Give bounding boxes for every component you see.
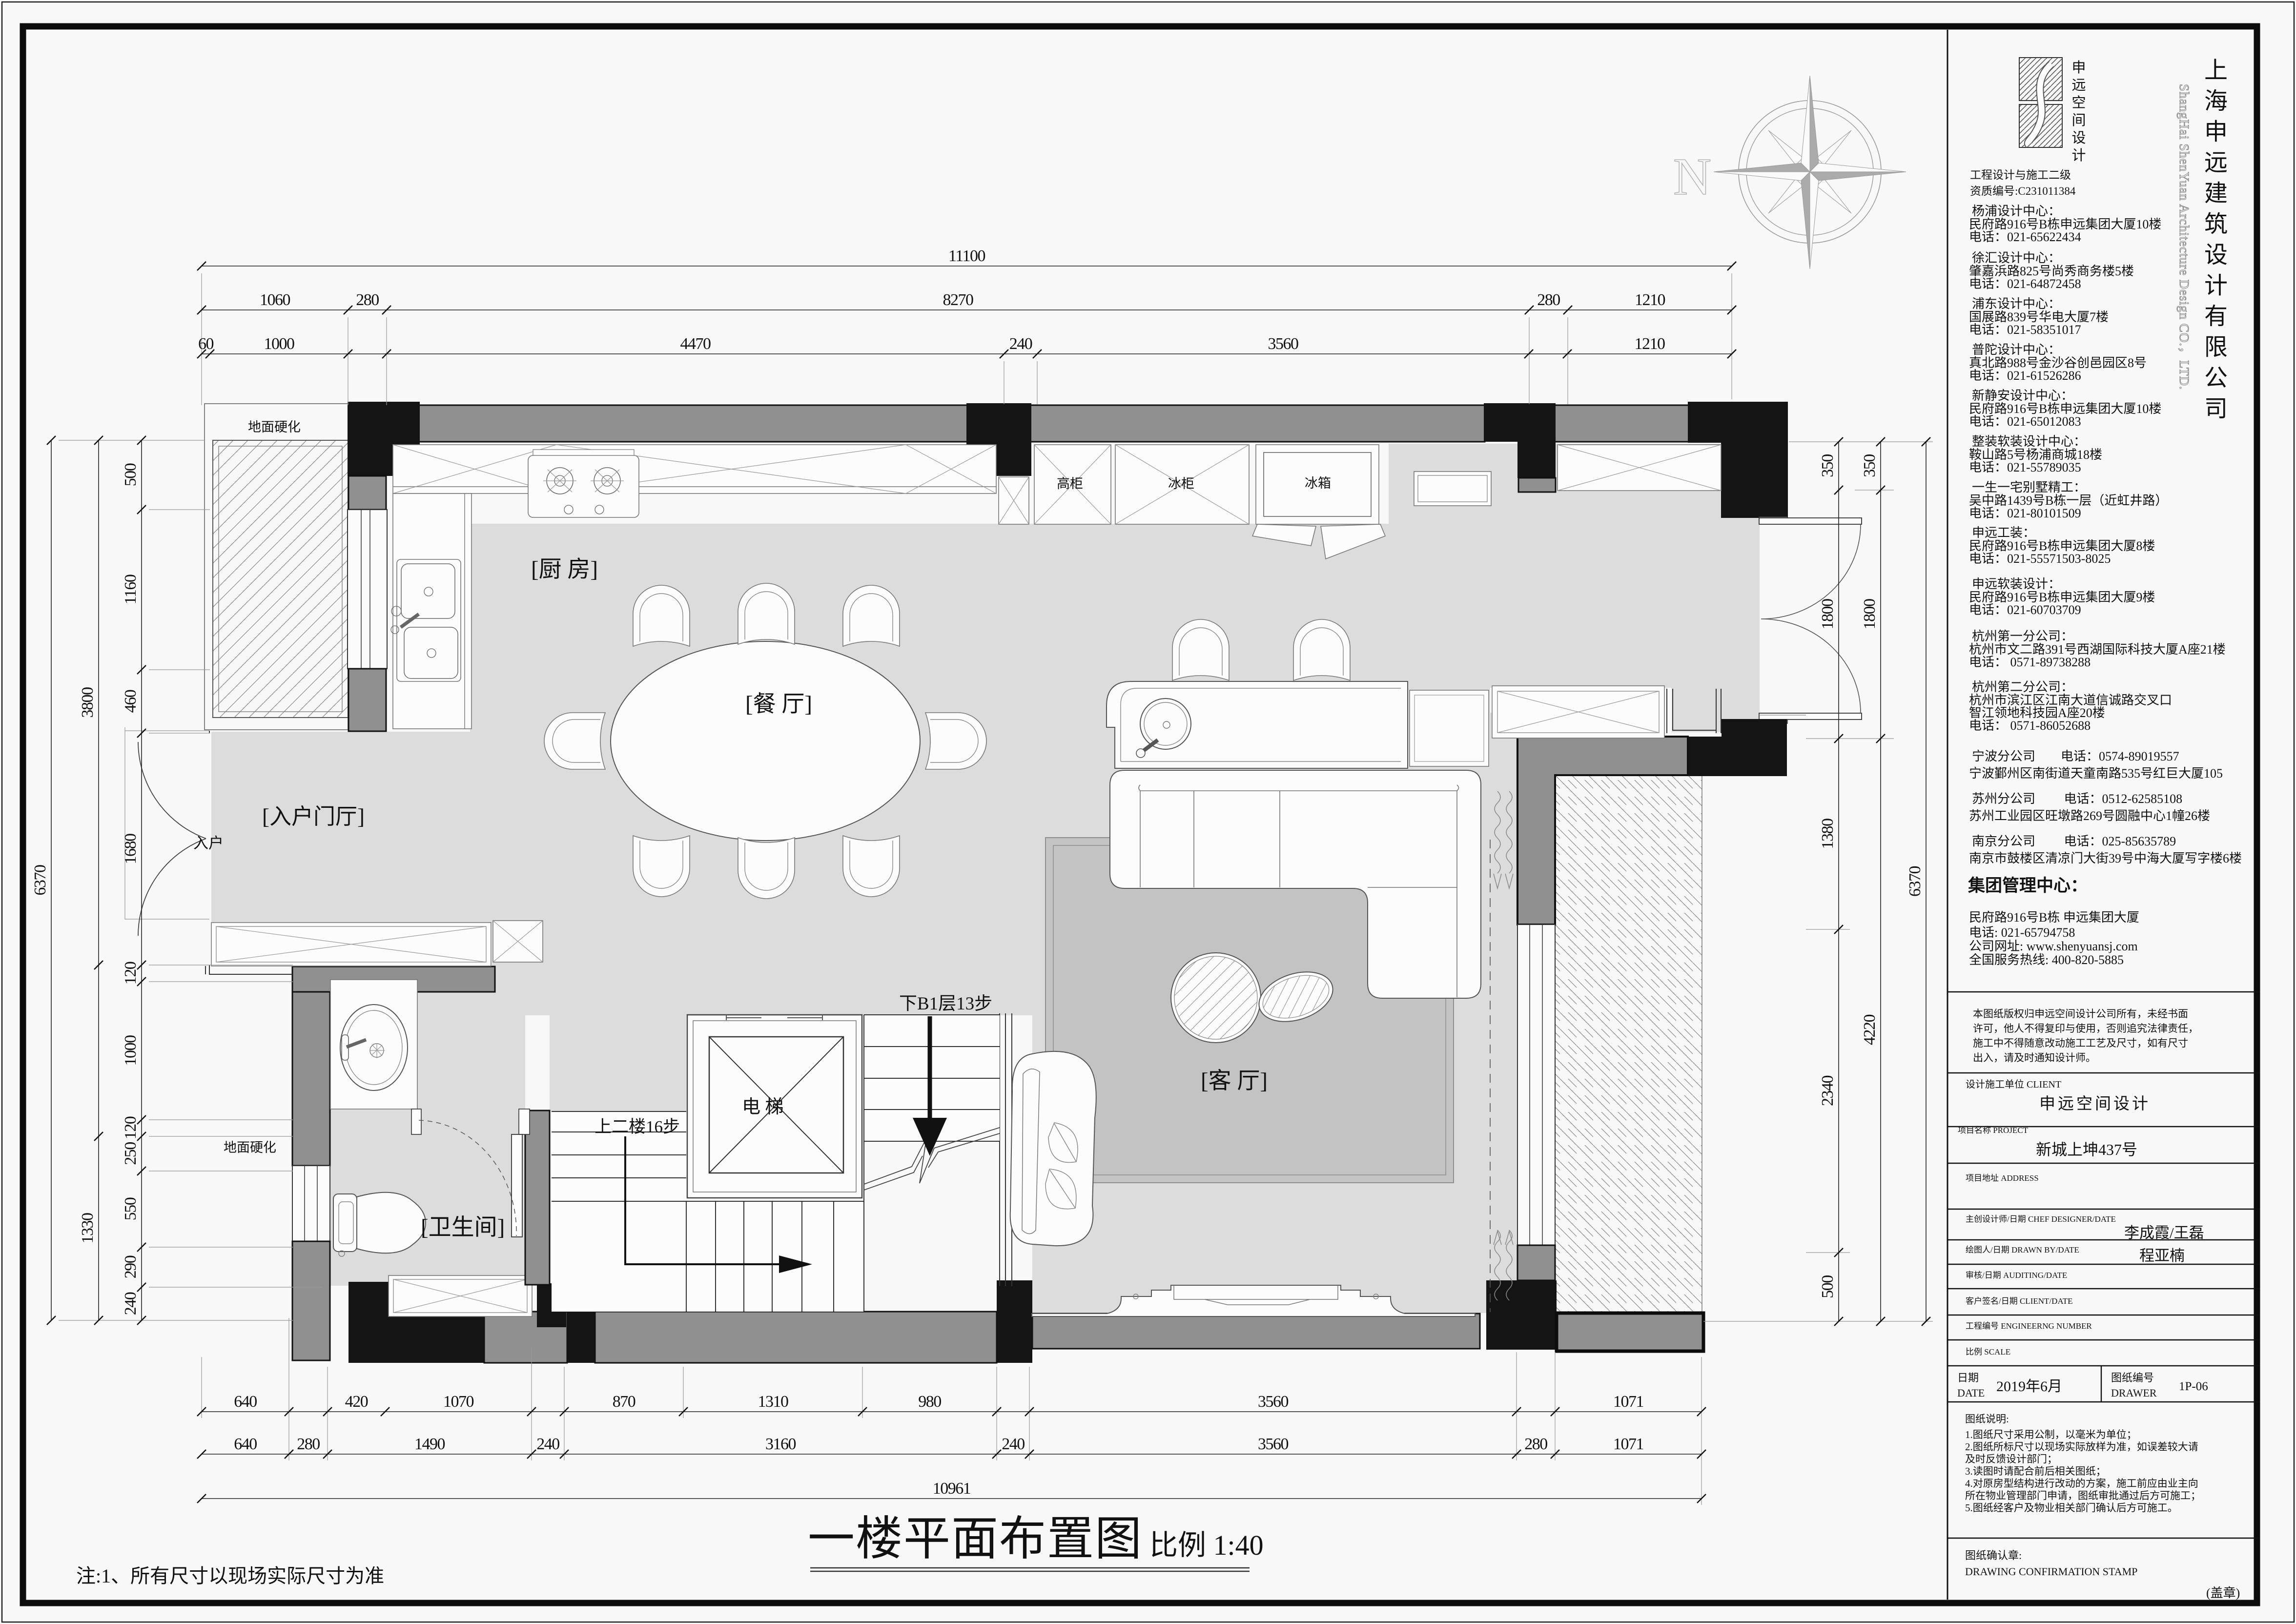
svg-text:3800: 3800 [79,687,97,718]
svg-text:电话：021-80101509: 电话：021-80101509 [1969,506,2081,520]
svg-text:南京分公司 电话：025-85635789: 南京分公司 电话：025-85635789 [1972,834,2176,848]
svg-text:280: 280 [1524,1435,1547,1453]
svg-text:许可，他人不得复印与使用，否则追究法律责任，: 许可，他人不得复印与使用，否则追究法律责任， [1973,1023,2198,1034]
svg-text:60: 60 [198,335,214,353]
svg-text:1310: 1310 [758,1393,789,1411]
svg-text:500: 500 [122,463,140,486]
svg-text:420: 420 [345,1393,368,1411]
svg-text:入户: 入户 [193,835,224,852]
svg-text:980: 980 [918,1393,941,1411]
svg-text:[卫生间]: [卫生间] [421,1215,505,1240]
svg-text:3560: 3560 [1258,1393,1289,1411]
svg-text:1680: 1680 [122,834,140,864]
svg-text:870: 870 [613,1393,635,1411]
svg-text:电话: 021-65794758: 电话: 021-65794758 [1969,925,2075,940]
svg-text:1.图纸尺寸采用公制，以毫米为单位；: 1.图纸尺寸采用公制，以毫米为单位； [1965,1429,2137,1440]
svg-text:6370: 6370 [1906,866,1924,897]
svg-text:日期: 日期 [1957,1372,1979,1384]
svg-text:项目名称 PROJECT: 项目名称 PROJECT [1958,1126,2029,1135]
svg-text:10961: 10961 [933,1480,971,1498]
svg-text:640: 640 [234,1435,257,1453]
svg-text:民府路916号B栋申远集团大厦10楼: 民府路916号B栋申远集团大厦10楼 [1969,402,2161,416]
svg-text:280: 280 [356,291,379,309]
svg-text:主创设计师/日期 CHEF DESIGNER/DATE: 主创设计师/日期 CHEF DESIGNER/DATE [1966,1214,2116,1224]
svg-text:2.图纸所标尺寸以现场实际放样为准，如误差较大请: 2.图纸所标尺寸以现场实际放样为准，如误差较大请 [1965,1441,2198,1453]
svg-text:苏州分公司 电话：0512-62585108: 苏州分公司 电话：0512-62585108 [1972,792,2182,806]
svg-text:电 梯: 电 梯 [742,1097,784,1117]
svg-text:1071: 1071 [1613,1393,1643,1411]
svg-text:电话：021-60703709: 电话：021-60703709 [1969,603,2081,617]
svg-text:高柜: 高柜 [1057,476,1083,491]
svg-text:地面硬化: 地面硬化 [224,1140,276,1155]
svg-text:公司网址: www.shenyuansj.com: 公司网址: www.shenyuansj.com [1969,939,2138,953]
svg-text:2019年6月: 2019年6月 [1996,1378,2062,1395]
svg-text:冰柜: 冰柜 [1168,476,1194,491]
svg-text:审核/日期 AUDITING/DATE: 审核/日期 AUDITING/DATE [1966,1271,2067,1280]
svg-text:民府路916号B栋 申远集团大厦: 民府路916号B栋 申远集团大厦 [1969,910,2139,925]
svg-text:集团管理中心：: 集团管理中心： [1968,876,2088,895]
svg-text:4470: 4470 [680,335,711,353]
svg-text:图纸说明:: 图纸说明: [1965,1413,2009,1425]
svg-text:工程设计与施工二级: 工程设计与施工二级 [1970,169,2071,181]
svg-text:图纸确认章:: 图纸确认章: [1965,1549,2022,1562]
svg-text:1800: 1800 [1819,599,1837,630]
svg-text:苏州工业园区旺墩路269号圆融中心1幢26楼: 苏州工业园区旺墩路269号圆融中心1幢26楼 [1969,809,2210,823]
svg-text:2340: 2340 [1819,1076,1837,1107]
svg-text:250: 250 [122,1142,140,1165]
svg-text:一楼平面布置图: 一楼平面布置图 [808,1513,1143,1565]
svg-text:3160: 3160 [765,1435,796,1453]
svg-text:申远工装：: 申远工装： [1972,526,2035,540]
svg-text:一生一宅别墅精工：: 一生一宅别墅精工： [1972,480,2086,494]
svg-text:120: 120 [122,962,140,985]
svg-text:申远软装设计：: 申远软装设计： [1972,577,2061,591]
svg-text:新城上坤437号: 新城上坤437号 [2036,1141,2137,1158]
svg-text:500: 500 [1819,1275,1837,1298]
svg-text:真北路988号金沙谷创邑园区8号: 真北路988号金沙谷创邑园区8号 [1969,356,2147,370]
svg-text:N: N [1673,148,1711,206]
svg-text:智江领地科技园A座20楼: 智江领地科技园A座20楼 [1969,706,2105,720]
svg-text:资质编号:C231011384: 资质编号:C231011384 [1970,185,2076,197]
svg-text:1210: 1210 [1635,335,1665,353]
svg-text:地面硬化: 地面硬化 [248,420,301,434]
svg-text:4.对原房型结构进行改动的方案，施工前应由业主向: 4.对原房型结构进行改动的方案，施工前应由业主向 [1965,1478,2198,1489]
svg-text:1000: 1000 [264,335,295,353]
svg-text:杭州第二分公司：: 杭州第二分公司： [1972,680,2073,694]
svg-text:宁波鄞州区南街道天童南路535号红巨大厦105: 宁波鄞州区南街道天童南路535号红巨大厦105 [1969,766,2223,781]
svg-text:比例 1:40: 比例 1:40 [1149,1529,1264,1561]
svg-text:全国服务热线: 400-820-5885: 全国服务热线: 400-820-5885 [1969,953,2124,967]
svg-text:下B1层13步: 下B1层13步 [899,994,992,1014]
svg-text:电话：021-55571503-8025: 电话：021-55571503-8025 [1969,552,2111,566]
svg-text:3.读图时请配合前后相关图纸；: 3.读图时请配合前后相关图纸； [1965,1465,2106,1477]
svg-text:1490: 1490 [414,1435,445,1453]
svg-text:6370: 6370 [31,865,49,896]
svg-text:图纸编号: 图纸编号 [2111,1372,2154,1384]
svg-text:[厨 房]: [厨 房] [531,557,598,582]
svg-text:[入户门厅]: [入户门厅] [262,804,365,829]
svg-text:DRAWER: DRAWER [2111,1387,2157,1399]
svg-text:电话：021-64872458: 电话：021-64872458 [1969,277,2081,291]
svg-text:国展路839号华电大厦7楼: 国展路839号华电大厦7楼 [1969,310,2109,324]
svg-text:民府路916号B栋申远集团大厦10楼: 民府路916号B栋申远集团大厦10楼 [1969,217,2161,231]
svg-text:设计施工单位 CLIENT: 设计施工单位 CLIENT [1966,1079,2061,1090]
svg-text:5.图纸经客户及物业相关部门确认后方可施工。: 5.图纸经客户及物业相关部门确认后方可施工。 [1965,1502,2178,1514]
svg-text:1070: 1070 [443,1393,474,1411]
svg-text:注:1、所有尺寸以现场实际尺寸为准: 注:1、所有尺寸以现场实际尺寸为准 [76,1565,384,1587]
svg-text:350: 350 [1819,454,1837,477]
svg-text:1060: 1060 [260,291,290,309]
svg-text:新静安设计中心：: 新静安设计中心： [1972,389,2073,403]
svg-text:普陀设计中心：: 普陀设计中心： [1972,343,2061,357]
svg-text:1800: 1800 [1861,599,1879,630]
svg-text:1000: 1000 [122,1035,140,1066]
svg-text:民府路916号B栋申远集团大厦8楼: 民府路916号B栋申远集团大厦8楼 [1969,539,2155,553]
svg-text:240: 240 [536,1435,559,1453]
svg-text:上二楼16步: 上二楼16步 [594,1117,680,1136]
svg-text:电话：021-61526286: 电话：021-61526286 [1969,369,2081,383]
svg-text:工程编号 ENGINEERNG NUMBER: 工程编号 ENGINEERNG NUMBER [1966,1321,2092,1331]
svg-text:1210: 1210 [1635,291,1665,309]
svg-text:李成霞/王磊: 李成霞/王磊 [2124,1224,2204,1241]
svg-text:电话： 0571-86052688: 电话： 0571-86052688 [1969,719,2091,733]
svg-text:1071: 1071 [1613,1435,1643,1453]
svg-text:240: 240 [122,1292,140,1315]
svg-text:1380: 1380 [1819,819,1837,849]
svg-text:本图纸版权归申远空间设计公司所有，未经书面: 本图纸版权归申远空间设计公司所有，未经书面 [1973,1008,2188,1020]
svg-text:所在物业管理部门申请，图纸审批通过后方可施工；: 所在物业管理部门申请，图纸审批通过后方可施工； [1965,1490,2201,1501]
svg-text:及时反馈设计部门；: 及时反馈设计部门； [1965,1453,2057,1465]
svg-text:客户签名/日期 CLIENT/DATE: 客户签名/日期 CLIENT/DATE [1966,1296,2073,1306]
svg-text:项目地址 ADDRESS: 项目地址 ADDRESS [1966,1173,2039,1183]
svg-text:8270: 8270 [943,291,974,309]
svg-text:绘图人/日期 DRAWN BY/DATE: 绘图人/日期 DRAWN BY/DATE [1966,1245,2079,1254]
svg-text:[客 厅]: [客 厅] [1201,1069,1268,1094]
svg-text:3560: 3560 [1268,335,1299,353]
svg-text:程亚楠: 程亚楠 [2139,1247,2185,1264]
svg-text:鞍山路5号杨浦商城18楼: 鞍山路5号杨浦商城18楼 [1969,448,2102,462]
svg-text:出入，请及时通知设计师。: 出入，请及时通知设计师。 [1973,1052,2096,1064]
svg-text:1330: 1330 [79,1213,97,1244]
svg-text:1160: 1160 [122,575,140,604]
svg-text:1P-06: 1P-06 [2179,1380,2208,1393]
svg-text:申远空间设计: 申远空间设计 [2039,1095,2151,1113]
svg-text:电话：021-65012083: 电话：021-65012083 [1969,414,2081,429]
svg-text:DRAWING CONFIRMATION STAMP: DRAWING CONFIRMATION STAMP [1965,1565,2137,1578]
svg-text:民府路916号B栋申远集团大厦9楼: 民府路916号B栋申远集团大厦9楼 [1969,590,2155,604]
svg-text:电话：021-55789035: 电话：021-55789035 [1969,460,2081,474]
svg-text:DATE: DATE [1957,1387,1985,1399]
svg-text:比例 SCALE: 比例 SCALE [1966,1347,2010,1357]
svg-text:640: 640 [234,1393,257,1411]
svg-text:(盖章): (盖章) [2206,1586,2240,1600]
svg-text:ShangHai ShenYuan Architecture: ShangHai ShenYuan Architecture Design CO… [2177,84,2192,390]
svg-text:冰箱: 冰箱 [1305,476,1331,491]
svg-text:550: 550 [122,1197,140,1220]
svg-text:11100: 11100 [948,247,985,265]
svg-text:肇嘉浜路825号尚秀商务楼5楼: 肇嘉浜路825号尚秀商务楼5楼 [1969,264,2134,278]
svg-text:3560: 3560 [1258,1435,1289,1453]
svg-text:[餐 厅]: [餐 厅] [745,692,812,717]
svg-text:电话： 0571-89738288: 电话： 0571-89738288 [1969,655,2091,669]
svg-text:徐汇设计中心：: 徐汇设计中心： [1972,251,2061,265]
svg-text:120: 120 [122,1116,140,1139]
svg-text:吴中路1439号B栋一层（近虹井路）: 吴中路1439号B栋一层（近虹井路） [1969,493,2168,508]
svg-text:350: 350 [1861,454,1879,477]
svg-text:整装软装设计中心：: 整装软装设计中心： [1972,434,2086,449]
svg-text:240: 240 [1009,335,1032,353]
svg-text:4220: 4220 [1861,1015,1879,1046]
svg-text:杭州市滨江区江南大道信诚路交叉口: 杭州市滨江区江南大道信诚路交叉口 [1969,693,2172,707]
svg-text:杭州第一分公司：: 杭州第一分公司： [1972,629,2073,643]
svg-text:280: 280 [297,1435,320,1453]
svg-text:南京市鼓楼区清凉门大街39号中海大厦写字楼6楼: 南京市鼓楼区清凉门大街39号中海大厦写字楼6楼 [1969,851,2242,865]
svg-text:240: 240 [1002,1435,1025,1453]
svg-text:浦东设计中心：: 浦东设计中心： [1972,297,2061,311]
svg-text:杨浦设计中心：: 杨浦设计中心： [1972,204,2061,218]
svg-text:460: 460 [122,690,140,713]
svg-text:280: 280 [1537,291,1560,309]
svg-text:电话：021-58351017: 电话：021-58351017 [1969,323,2081,337]
svg-text:290: 290 [122,1255,140,1278]
svg-text:施工中不得随意改动施工工艺及尺寸，如有尺寸: 施工中不得随意改动施工工艺及尺寸，如有尺寸 [1973,1037,2188,1049]
svg-text:电话：021-65622434: 电话：021-65622434 [1969,230,2081,244]
svg-text:杭州市文二路391号西湖国际科技大厦A座21楼: 杭州市文二路391号西湖国际科技大厦A座21楼 [1969,642,2226,657]
svg-text:宁波分公司 电话：0574-89019557: 宁波分公司 电话：0574-89019557 [1972,749,2179,763]
